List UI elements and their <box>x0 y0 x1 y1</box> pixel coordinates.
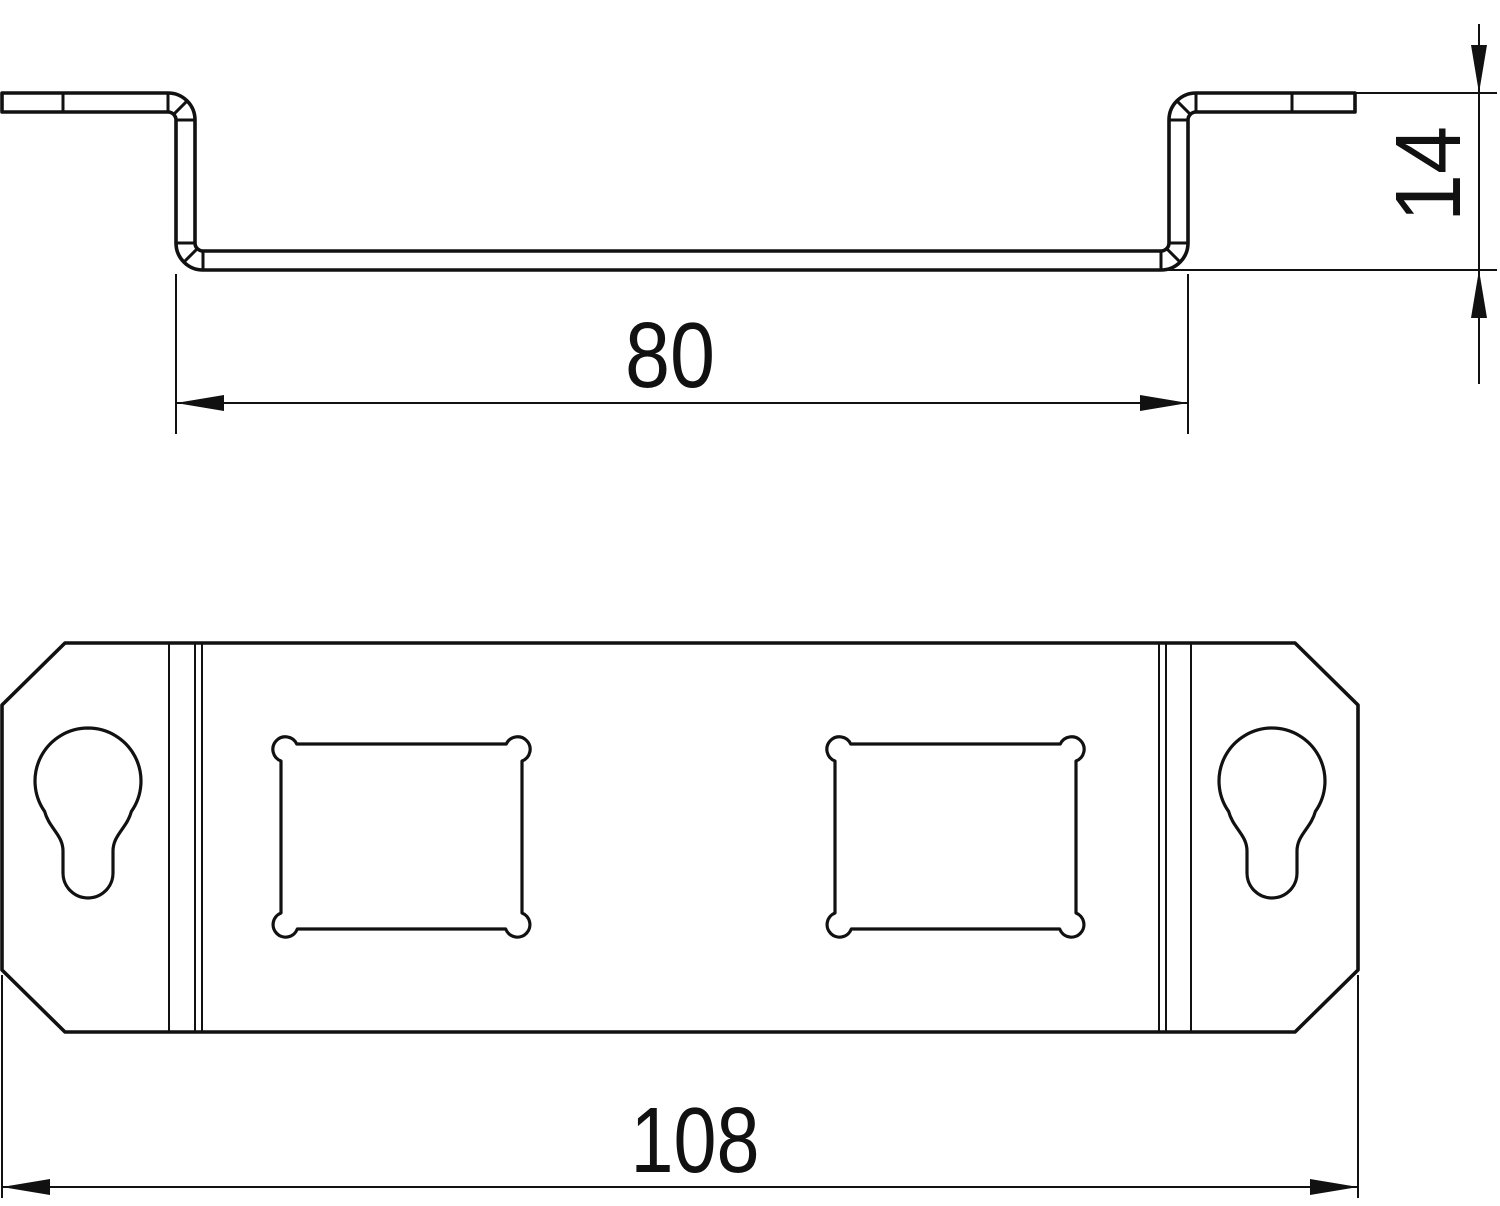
dimension-opening-width: 80 <box>176 274 1188 434</box>
keyhole-slot-left <box>35 728 141 898</box>
arrowhead-top <box>1471 45 1487 93</box>
keyhole-slot-right <box>1219 728 1325 898</box>
bend-lines <box>169 643 1191 1032</box>
drawing-page: 80 14 108 <box>0 0 1500 1206</box>
dimension-label-overall-width: 108 <box>631 1088 760 1192</box>
arrowhead-left <box>2 1179 50 1195</box>
profile-bend-tangent-ticks <box>63 93 1292 270</box>
plate-outline <box>2 643 1358 1032</box>
dimension-profile-height: 14 <box>1161 24 1497 384</box>
profile-outline <box>2 93 1355 270</box>
arrowhead-right <box>1140 395 1188 411</box>
module-cutout-right <box>827 737 1084 937</box>
arrowhead-left <box>176 395 224 411</box>
profile-view: 80 14 <box>2 24 1497 434</box>
dimension-label-height: 14 <box>1376 126 1480 222</box>
dimension-label-opening-width: 80 <box>625 303 715 407</box>
plan-view: 108 <box>2 643 1358 1198</box>
dimension-overall-width: 108 <box>2 975 1358 1198</box>
arrowhead-bottom <box>1471 270 1487 318</box>
arrowhead-right <box>1310 1179 1358 1195</box>
technical-drawing: 80 14 108 <box>0 0 1500 1206</box>
module-cutout-left <box>273 737 530 937</box>
